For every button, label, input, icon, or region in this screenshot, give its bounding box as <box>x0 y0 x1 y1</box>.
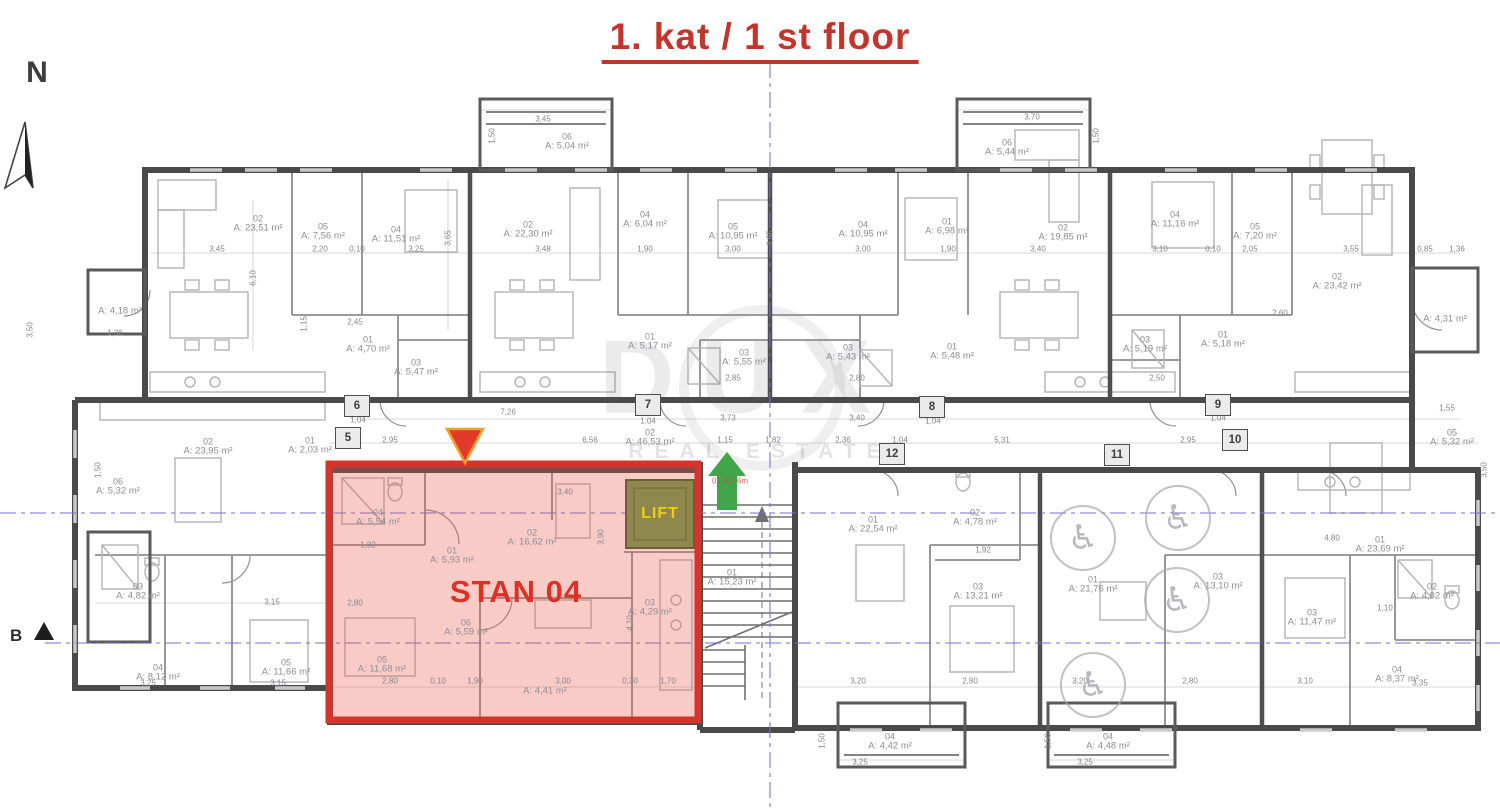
section-b-label: B <box>10 626 22 646</box>
room-label: 01A: 21,76 m² <box>1068 574 1117 595</box>
dimension-label: 1,90 <box>940 245 956 254</box>
dimension-label: 5,31 <box>994 436 1010 445</box>
wheelchair-icon: ♿ <box>1145 485 1211 551</box>
room-area: A: 11,47 m² <box>1288 618 1336 629</box>
stair-note: 02 3,2-6m <box>712 477 748 486</box>
room-label: 01A: 23,69 m² <box>1355 534 1404 555</box>
room-label: 05A: 7,20 m² <box>1233 221 1277 242</box>
wheelchair-icon: ♿ <box>1050 505 1116 571</box>
room-label: 05A: 7,56 m² <box>301 221 345 242</box>
room-area: A: 5,43 m² <box>826 353 870 364</box>
dimension-label: 2,36 <box>835 436 851 445</box>
dimension-label: 3,25 <box>408 245 424 254</box>
room-area: A: 16,62 m² <box>507 538 556 549</box>
room-area: A: 11,66 m² <box>262 668 310 679</box>
room-label: 01A: 15,23 m² <box>707 567 756 588</box>
floor-plan-page: DUX REAL ESTATE 02A: 23,51 m²05A: 7,56 m… <box>0 0 1500 811</box>
room-label: 01A: 5,18 m² <box>1201 329 1245 350</box>
room-area: A: 5,48 m² <box>930 352 974 363</box>
dimension-label: 3,50 <box>1480 462 1489 478</box>
dimension-label: 1,82 <box>360 541 376 550</box>
room-area: A: 4,18 m² <box>98 307 142 318</box>
dimension-label: 4,10 <box>626 615 635 631</box>
dimension-label: 3,10 <box>1297 677 1313 686</box>
grid-bubble-9: 9 <box>1205 394 1231 416</box>
room-area: A: 5,59 m² <box>444 628 488 639</box>
room-area: A: 5,55 m² <box>722 358 766 369</box>
dimension-label: 1,15 <box>300 316 309 332</box>
room-label: A: 4,18 m² <box>98 307 142 318</box>
room-label: 01A: 5,17 m² <box>628 331 672 352</box>
room-label: 03A: 13,21 m² <box>953 581 1002 602</box>
room-label: 04A: 10,95 m² <box>838 219 887 240</box>
dimension-label: 2,80 <box>962 677 978 686</box>
room-area: A: 10,95 m² <box>838 230 887 241</box>
room-area: A: 2,03 m² <box>288 446 332 457</box>
dimension-label: 3,20 <box>850 677 866 686</box>
room-area: A: 21,76 m² <box>1068 585 1117 596</box>
dimension-label: 1,82 <box>765 436 781 445</box>
dimension-label: 3,70 <box>1024 113 1040 122</box>
room-label: 04A: 11,51 m² <box>372 224 420 245</box>
room-area: A: 15,23 m² <box>707 578 756 589</box>
room-area: A: 23,51 m² <box>233 224 282 235</box>
room-label: 03A: 4,82 m² <box>116 581 160 602</box>
room-label: A: 4,41 m² <box>523 687 567 698</box>
room-area: A: 7,56 m² <box>301 232 345 243</box>
dimension-label: 3,15 <box>270 679 286 688</box>
room-label: 04A: 11,16 m² <box>1151 209 1199 230</box>
room-label: 02A: 4,78 m² <box>953 507 997 528</box>
stan04-label: STAN 04 <box>450 574 582 610</box>
wheelchair-icon: ♿ <box>1060 652 1126 718</box>
dimension-label: 3,25 <box>852 758 868 767</box>
north-label: N <box>14 58 60 88</box>
room-area: A: 5,32 m² <box>1430 438 1474 449</box>
dimension-label: 3,40 <box>557 488 573 497</box>
dimension-label: 1,90 <box>637 245 653 254</box>
dimension-label: 2,80 <box>1182 677 1198 686</box>
lift-label: LIFT <box>641 505 679 523</box>
dimension-label: 2,80 <box>347 599 363 608</box>
dimension-label: 1,50 <box>488 128 497 144</box>
room-area: A: 5,93 m² <box>430 556 474 567</box>
wheelchair-icon: ♿ <box>1144 567 1210 633</box>
room-label: 01A: 4,70 m² <box>346 334 390 355</box>
grid-bubble-8: 8 <box>919 396 945 418</box>
dimension-label: 2,80 <box>849 374 865 383</box>
dimension-label: 1,50 <box>818 733 827 749</box>
room-area: A: 6,04 m² <box>623 220 667 231</box>
dimension-label: 2,05 <box>1242 245 1258 254</box>
room-area: A: 4,31 m² <box>1423 315 1467 326</box>
dimension-label: 2,45 <box>347 318 363 327</box>
dimension-label: 2,95 <box>382 436 398 445</box>
dimension-label: 2,95 <box>1180 436 1196 445</box>
room-area: A: 11,16 m² <box>1151 220 1199 231</box>
room-area: A: 4,42 m² <box>868 742 912 753</box>
section-marker-b: B <box>10 626 22 646</box>
dimension-label: 3,73 <box>720 414 736 423</box>
room-area: A: 22,54 m² <box>848 525 897 536</box>
room-area: A: 4,48 m² <box>1086 742 1130 753</box>
dimension-label: 2,85 <box>725 374 741 383</box>
grid-bubble-10: 10 <box>1222 429 1248 451</box>
room-area: A: 46,53 m² <box>625 438 674 449</box>
dimension-label: 2,50 <box>1149 374 1165 383</box>
room-area: A: 19,85 m² <box>1038 233 1087 244</box>
plan-labels-layer: 02A: 23,51 m²05A: 7,56 m²04A: 11,51 m²01… <box>0 0 1500 811</box>
room-label: 03A: 5,55 m² <box>722 347 766 368</box>
room-label: 01A: 6,98 m² <box>925 216 969 237</box>
dimension-label: 3,65 <box>766 230 775 246</box>
dimension-label: 0,10 <box>1205 245 1221 254</box>
room-label: 02A: 23,51 m² <box>233 213 282 234</box>
room-label: 06A: 5,44 m² <box>985 137 1029 158</box>
dimension-label: 1,36 <box>107 329 123 338</box>
dimension-label: 1,70 <box>660 677 676 686</box>
dimension-label: 0,10 <box>430 677 446 686</box>
room-label: 02A: 23,42 m² <box>1312 271 1361 292</box>
room-label: 05A: 5,32 m² <box>1430 427 1474 448</box>
dimension-label: 3,00 <box>725 245 741 254</box>
room-label: 06A: 5,32 m² <box>96 476 140 497</box>
dimension-label: 1,04 <box>640 417 656 426</box>
dimension-label: 3,15 <box>264 598 280 607</box>
room-label: 02A: 22,30 m² <box>503 219 552 240</box>
dimension-label: 3,65 <box>444 230 453 246</box>
dimension-label: 3,45 <box>209 245 225 254</box>
grid-bubble-7: 7 <box>635 394 661 416</box>
dimension-label: 3,35 <box>1412 679 1428 688</box>
room-area: A: 7,20 m² <box>1233 232 1277 243</box>
dimension-label: 1,55 <box>1439 404 1455 413</box>
room-label: 03A: 4,29 m² <box>628 597 672 618</box>
dimension-label: 7,26 <box>500 408 516 417</box>
room-label: 04A: 5,54 m² <box>356 507 400 528</box>
room-area: A: 5,18 m² <box>1201 340 1245 351</box>
dimension-label: 4,80 <box>1324 534 1340 543</box>
dimension-label: 3,48 <box>535 245 551 254</box>
room-area: A: 4,82 m² <box>116 592 160 603</box>
room-area: A: 4,70 m² <box>346 345 390 356</box>
room-area: A: 5,19 m² <box>1123 345 1167 356</box>
grid-bubble-5: 5 <box>335 427 361 449</box>
room-label: 02A: 46,53 m² <box>625 427 674 448</box>
room-label: 03A: 5,19 m² <box>1123 334 1167 355</box>
room-area: A: 10,95 m² <box>708 232 757 243</box>
dimension-label: 1,36 <box>1449 245 1465 254</box>
room-label: 05A: 11,66 m² <box>262 657 310 678</box>
room-area: A: 5,17 m² <box>628 342 672 353</box>
dimension-label: 3,40 <box>849 414 865 423</box>
dimension-label: 3,25 <box>1077 758 1093 767</box>
dimension-label: 0,10 <box>349 245 365 254</box>
room-area: A: 5,47 m² <box>394 368 438 379</box>
room-label: 03A: 5,43 m² <box>826 342 870 363</box>
room-label: 06A: 5,59 m² <box>444 617 488 638</box>
dimension-label: 3,55 <box>1343 245 1359 254</box>
room-label: 03A: 11,47 m² <box>1288 607 1336 628</box>
room-label: 05A: 10,95 m² <box>708 221 757 242</box>
dimension-label: 3,90 <box>597 529 606 545</box>
dimension-label: 3,50 <box>26 322 35 338</box>
room-label: 01A: 5,93 m² <box>430 545 474 566</box>
room-label: 02A: 23,95 m² <box>183 436 232 457</box>
dimension-label: 1,50 <box>1092 128 1101 144</box>
dimension-label: 2,80 <box>382 677 398 686</box>
room-area: A: 5,44 m² <box>985 148 1029 159</box>
room-area: A: 5,32 m² <box>96 487 140 498</box>
room-area: A: 6,98 m² <box>925 227 969 238</box>
dimension-label: 1,90 <box>467 677 483 686</box>
room-area: A: 5,04 m² <box>545 142 589 153</box>
room-area: A: 5,54 m² <box>356 518 400 529</box>
room-label: 04A: 6,04 m² <box>623 209 667 230</box>
grid-bubble-6: 6 <box>344 395 370 417</box>
dimension-label: 3,25 <box>140 679 156 688</box>
room-area: A: 13,21 m² <box>953 592 1002 603</box>
dimension-label: 3,45 <box>535 115 551 124</box>
room-area: A: 23,69 m² <box>1355 545 1404 556</box>
dimension-label: 3,00 <box>855 245 871 254</box>
room-label: 06A: 5,04 m² <box>545 131 589 152</box>
room-area: A: 4,41 m² <box>523 687 567 698</box>
dimension-label: 3,10 <box>1152 245 1168 254</box>
dimension-label: 1,50 <box>94 462 103 478</box>
room-label: 01A: 5,48 m² <box>930 341 974 362</box>
dimension-label: 6,10 <box>249 270 258 286</box>
room-label: 02A: 19,85 m² <box>1038 222 1087 243</box>
room-label: 02A: 4,82 m² <box>1410 581 1454 602</box>
north-indicator: N <box>14 58 60 88</box>
room-area: A: 4,82 m² <box>1410 592 1454 603</box>
room-label: 01A: 2,03 m² <box>288 435 332 456</box>
dimension-label: 1,50 <box>1044 733 1053 749</box>
room-area: A: 11,68 m² <box>358 665 406 676</box>
room-area: A: 22,30 m² <box>503 230 552 241</box>
room-label: 01A: 22,54 m² <box>848 514 897 535</box>
dimension-label: 1,92 <box>975 546 991 555</box>
room-label: 04A: 4,48 m² <box>1086 731 1130 752</box>
dimension-label: 0,85 <box>1417 245 1433 254</box>
room-area: A: 4,78 m² <box>953 518 997 529</box>
room-area: A: 4,29 m² <box>628 608 672 619</box>
grid-bubble-12: 12 <box>879 443 905 465</box>
room-area: A: 23,42 m² <box>1312 282 1361 293</box>
page-title: 1. kat / 1 st floor <box>602 16 919 64</box>
room-label: 04A: 4,42 m² <box>868 731 912 752</box>
dimension-label: 3,40 <box>1030 245 1046 254</box>
dimension-label: 2,60 <box>1272 309 1288 318</box>
dimension-label: 1,15 <box>717 436 733 445</box>
dimension-label: 2,20 <box>312 245 328 254</box>
room-label: 05A: 11,68 m² <box>358 654 406 675</box>
room-label: 02A: 16,62 m² <box>507 527 556 548</box>
grid-bubble-11: 11 <box>1104 444 1130 466</box>
dimension-label: 3,00 <box>555 677 571 686</box>
room-label: A: 4,31 m² <box>1423 315 1467 326</box>
dimension-label: 6,56 <box>582 436 598 445</box>
dimension-label: 0,30 <box>622 677 638 686</box>
dimension-label: 1,10 <box>1377 604 1393 613</box>
room-area: A: 23,95 m² <box>183 447 232 458</box>
room-label: 03A: 5,47 m² <box>394 357 438 378</box>
